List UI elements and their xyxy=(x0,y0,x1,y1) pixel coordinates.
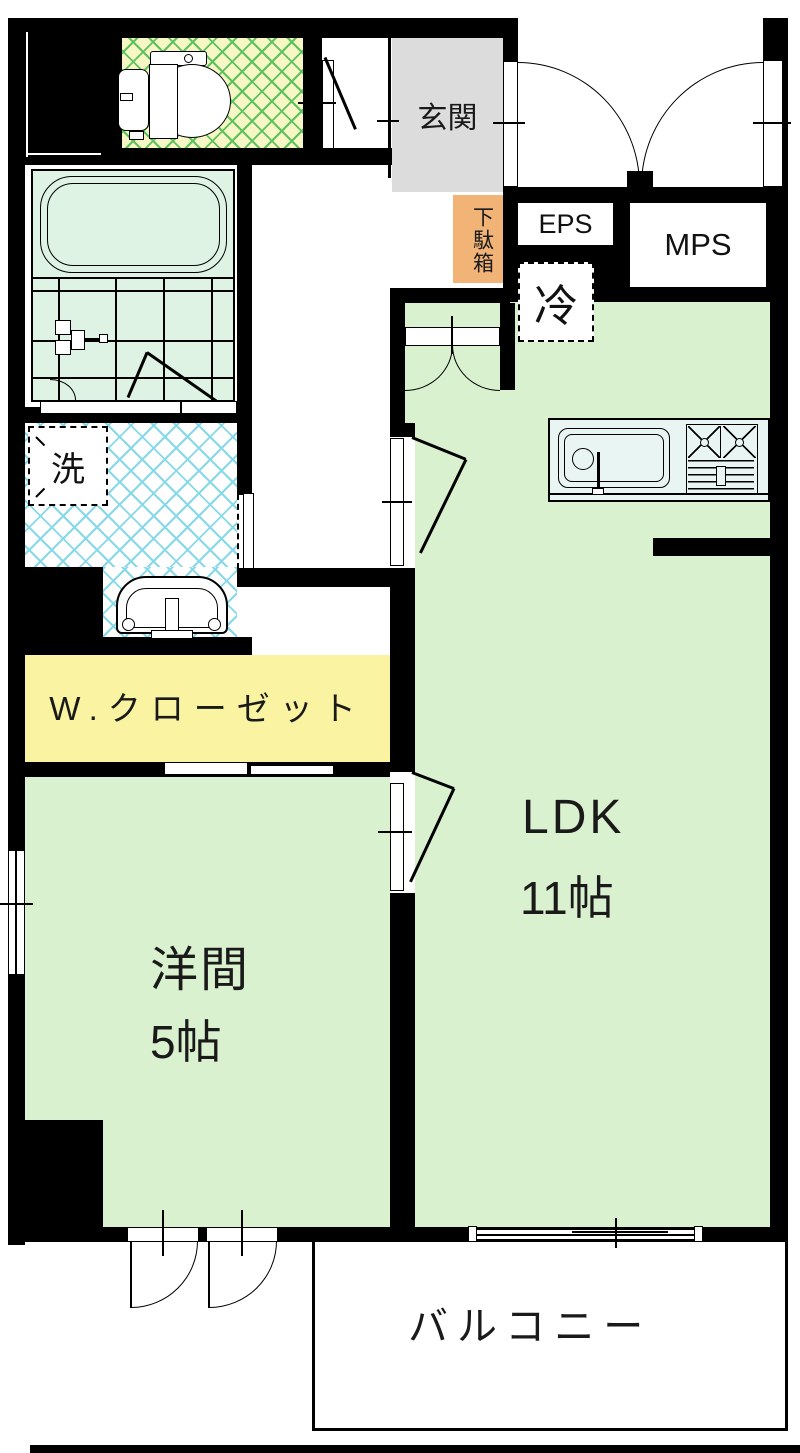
shower-icon xyxy=(55,320,71,335)
door-swing-arc xyxy=(209,1241,277,1308)
wall xyxy=(237,568,415,587)
entrance-door-arc xyxy=(518,62,640,186)
tick-mark xyxy=(615,1218,617,1248)
tick-mark xyxy=(382,501,412,503)
burner-cap xyxy=(735,438,744,447)
bath-grid-line xyxy=(33,290,233,292)
bath-grid-line xyxy=(115,277,117,400)
tick-mark xyxy=(753,122,791,124)
sink-drain xyxy=(572,448,594,470)
bath-threshold xyxy=(40,401,237,414)
wall-ldk-west xyxy=(390,423,415,437)
duct-line xyxy=(26,153,101,155)
vanity-pedestal xyxy=(165,598,179,632)
burner-cap xyxy=(700,438,709,447)
bath-threshold-divider xyxy=(180,401,182,414)
shower-knob xyxy=(99,334,108,343)
toilet-spout xyxy=(120,93,133,101)
floor-plan: EPS MPS 冷 洗 xyxy=(0,0,800,1453)
wall-ldk-west xyxy=(390,893,415,1240)
entrance-door-leaf xyxy=(503,61,518,187)
window-end-cap xyxy=(694,1226,703,1242)
window-pane-line xyxy=(15,851,17,974)
wall xyxy=(237,423,252,495)
shoe-cabinet-label: 下駄箱 xyxy=(453,198,510,282)
ldk-label: LDK xyxy=(522,790,624,845)
closet-sliding-panel xyxy=(250,765,334,775)
ldk-size-label: 11帖 xyxy=(520,862,614,928)
toilet-lid-button xyxy=(184,54,193,63)
entrance-door-arc xyxy=(641,62,763,186)
door-swing-arc xyxy=(131,1241,198,1308)
eps-box: EPS xyxy=(518,203,613,245)
wall xyxy=(390,288,510,303)
vanity-knob xyxy=(122,618,135,631)
tick-mark xyxy=(572,1231,668,1233)
wall xyxy=(25,637,252,655)
toilet-seat-hinge xyxy=(149,64,178,139)
balcony-label: バルコニー xyxy=(408,1294,652,1352)
tick-mark xyxy=(0,903,33,905)
western-room-size-label: 5帖 xyxy=(150,1006,222,1072)
wall-kitchen-stub xyxy=(653,538,770,556)
ldk-size-text: 11帖 xyxy=(520,872,614,924)
toilet-base-stub xyxy=(129,131,144,140)
closet-label: W.クローゼット xyxy=(30,682,385,730)
laundry-label: 洗 xyxy=(51,442,85,491)
sliding-door-leaf xyxy=(243,493,254,569)
wall-left-outer xyxy=(8,165,25,850)
door-leaf xyxy=(390,783,404,891)
bath-grid-line xyxy=(211,277,213,400)
window xyxy=(8,850,25,975)
wall xyxy=(303,38,322,150)
western-room-label: 洋間 xyxy=(150,930,250,1000)
wall-door-post xyxy=(503,18,518,62)
wall-ldk-west xyxy=(390,302,405,437)
entrance-label-text: 玄関 xyxy=(418,93,478,137)
ldk-label-text: LDK xyxy=(522,791,624,844)
outer-bottom-bar xyxy=(30,1445,800,1453)
western-room-label-text: 洋間 xyxy=(150,944,250,997)
bath-grid-line xyxy=(33,277,233,279)
tick-mark xyxy=(378,831,412,833)
bathtub-inner xyxy=(47,183,220,266)
wall-right-outer xyxy=(770,18,788,1242)
bath-grid-line xyxy=(33,377,233,379)
mps-box: MPS xyxy=(630,203,766,287)
closet-label-text: W.クローゼット xyxy=(49,690,366,727)
bath-grid-line xyxy=(163,277,165,400)
shower-icon xyxy=(55,340,71,355)
western-room-size-text: 5帖 xyxy=(150,1016,222,1068)
shower-arm xyxy=(71,330,85,350)
sliding-door-track xyxy=(237,494,239,569)
duct-line xyxy=(26,32,28,157)
wall-step xyxy=(8,1120,103,1242)
faucet-base xyxy=(592,488,604,495)
grill-knob xyxy=(716,466,726,486)
entrance-center-stub xyxy=(627,171,653,187)
wall-stub xyxy=(500,303,515,390)
closet-sliding-panel xyxy=(164,762,248,775)
shoe-cabinet-label-text: 下駄箱 xyxy=(467,206,497,275)
window-end-cap xyxy=(468,1226,477,1242)
window-pane-line xyxy=(476,1234,696,1236)
vanity-pedestal-base xyxy=(151,630,193,639)
entrance-label: 玄関 xyxy=(392,37,503,192)
wall-ldk-west xyxy=(390,568,415,772)
mps-label: MPS xyxy=(664,227,731,263)
eps-label: EPS xyxy=(538,209,592,240)
balcony-label-text: バルコニー xyxy=(408,1305,652,1349)
refrigerator-space: 冷 xyxy=(518,262,594,342)
wall xyxy=(122,148,392,165)
tick-mark xyxy=(298,102,336,104)
refrigerator-label: 冷 xyxy=(534,270,578,334)
wall xyxy=(237,165,252,423)
entrance-wall-line xyxy=(388,33,391,178)
vanity-knob xyxy=(208,618,221,631)
